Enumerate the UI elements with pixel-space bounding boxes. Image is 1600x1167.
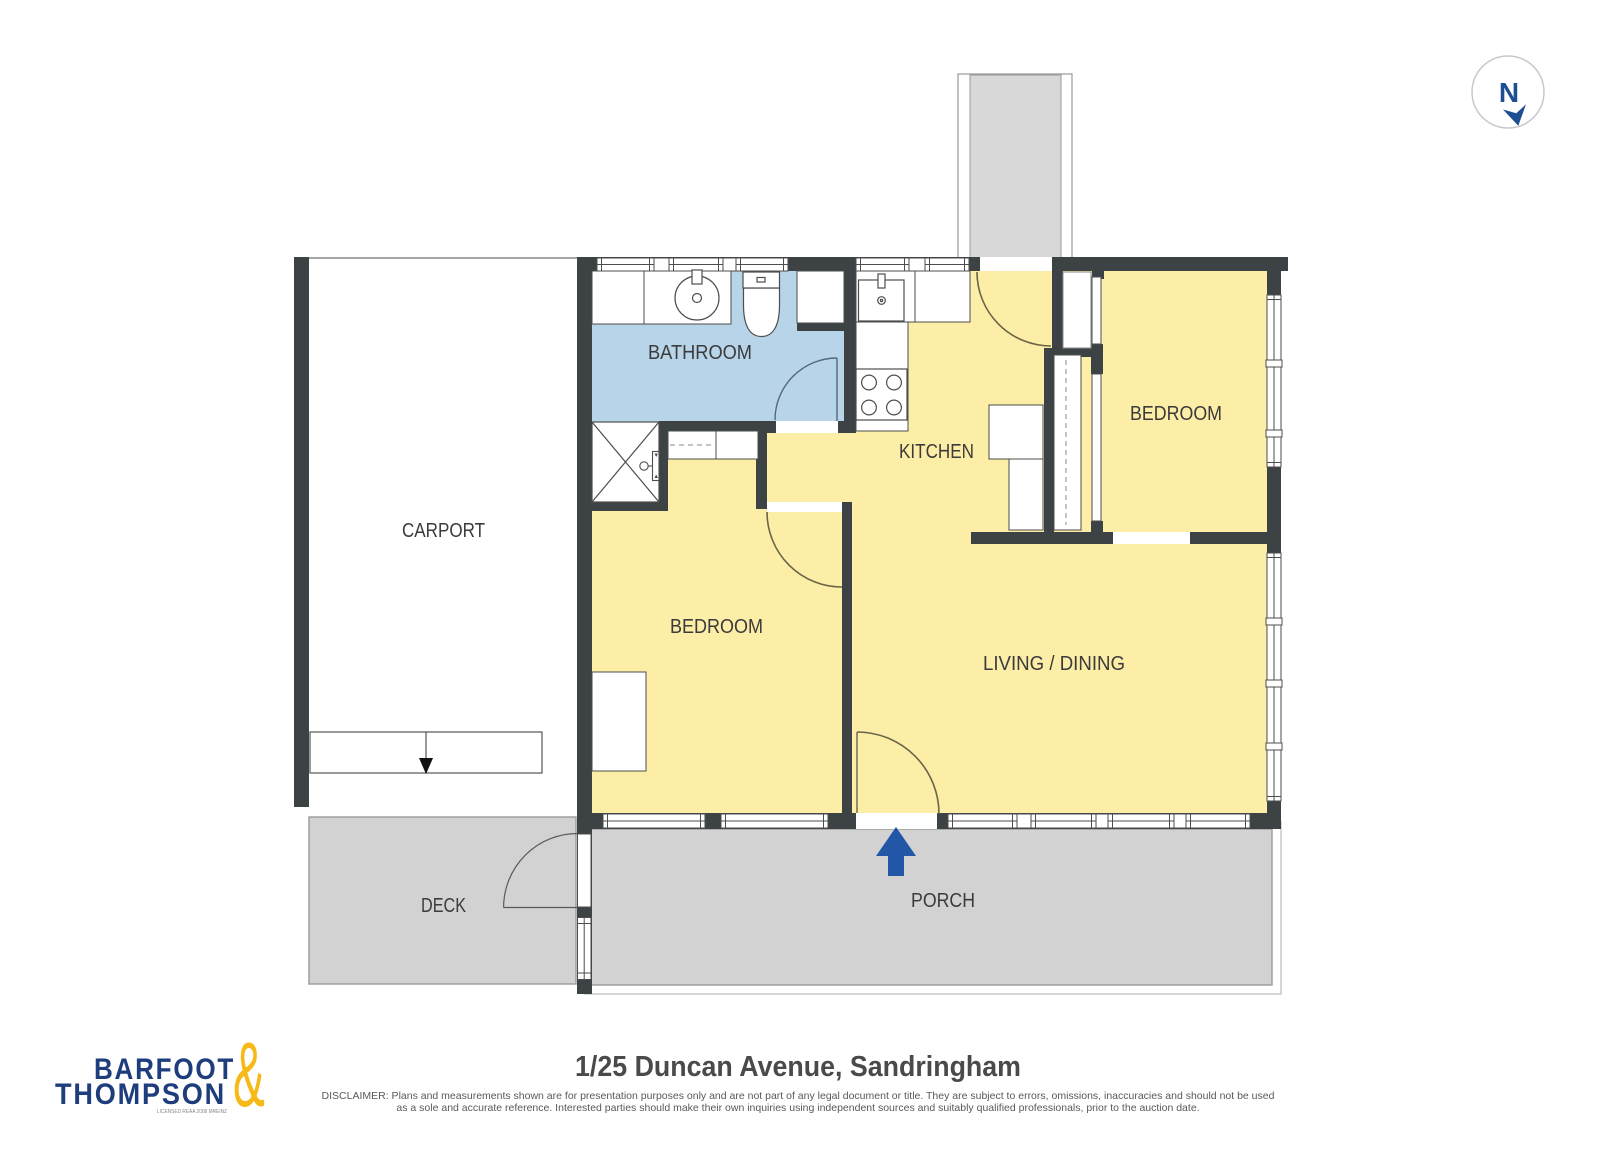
svg-text:KITCHEN: KITCHEN	[899, 441, 974, 463]
svg-text:BATHROOM: BATHROOM	[648, 342, 752, 364]
svg-text:DECK: DECK	[421, 895, 467, 917]
svg-text:PORCH: PORCH	[911, 890, 975, 912]
svg-text:THOMPSON: THOMPSON	[55, 1078, 226, 1111]
svg-text:LICENSED REAA 2008 MREINZ: LICENSED REAA 2008 MREINZ	[157, 1109, 228, 1115]
svg-text:LIVING / DINING: LIVING / DINING	[983, 653, 1125, 675]
svg-text:as a sole and accurate referen: as a sole and accurate reference. Intere…	[396, 1102, 1199, 1114]
svg-text:1/25 Duncan Avenue, Sandringha: 1/25 Duncan Avenue, Sandringham	[575, 1051, 1021, 1083]
svg-text:CARPORT: CARPORT	[402, 520, 485, 542]
svg-text:N: N	[1499, 77, 1519, 108]
svg-text:DISCLAIMER: Plans and measurem: DISCLAIMER: Plans and measurements shown…	[322, 1090, 1275, 1102]
svg-text:BEDROOM: BEDROOM	[1130, 403, 1222, 425]
svg-text:BEDROOM: BEDROOM	[670, 616, 763, 638]
svg-text:&: &	[233, 1023, 265, 1126]
